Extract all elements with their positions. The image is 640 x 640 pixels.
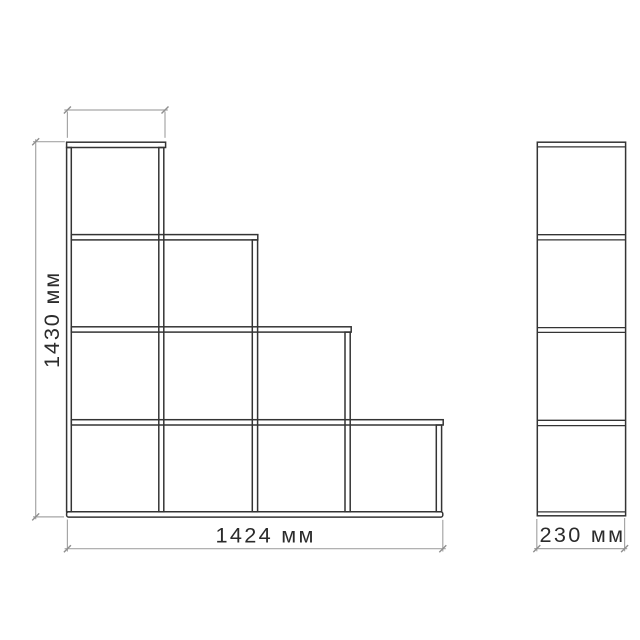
svg-text:1430 мм: 1430 мм	[39, 271, 64, 368]
svg-text:1424 мм: 1424 мм	[216, 523, 316, 548]
svg-text:230 мм: 230 мм	[540, 522, 626, 547]
